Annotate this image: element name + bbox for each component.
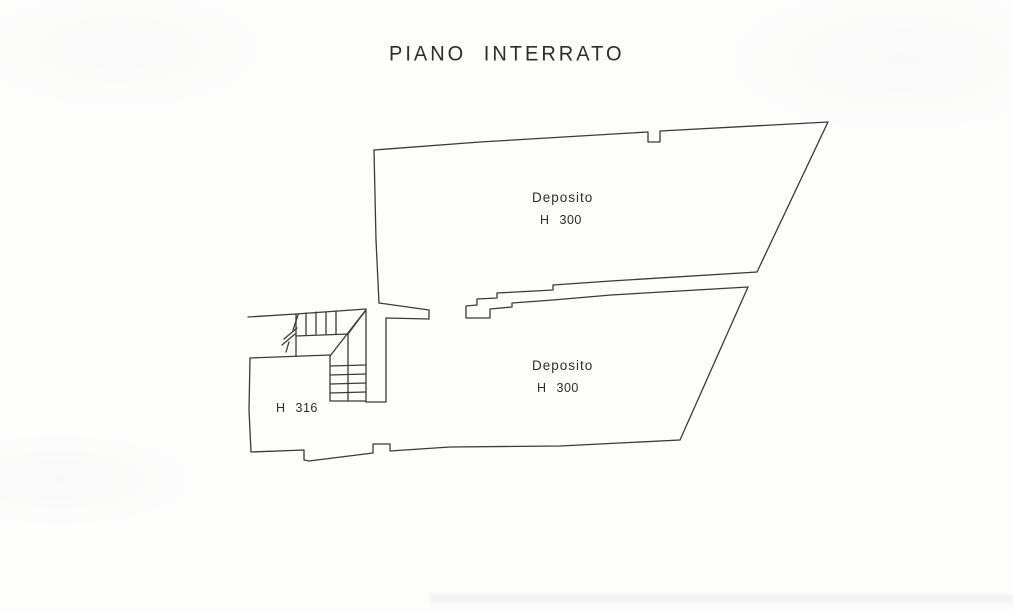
upper-room-height-label: H 300 <box>540 214 582 227</box>
lower-room-height-label: H 300 <box>537 382 579 395</box>
stair-room-height-label: H 316 <box>276 402 318 415</box>
upper-room-label: Deposito <box>532 191 593 205</box>
upper-room-outline <box>374 122 828 303</box>
plan-title: PIANO INTERRATO <box>389 44 625 65</box>
corridor-wall <box>366 303 429 402</box>
scanned-floor-plan-page: PIANO INTERRATO Deposito H 300 Deposito … <box>0 0 1013 613</box>
lower-room-label: Deposito <box>532 359 593 373</box>
floor-plan-drawing <box>0 0 1013 613</box>
dividing-wall <box>466 272 757 318</box>
